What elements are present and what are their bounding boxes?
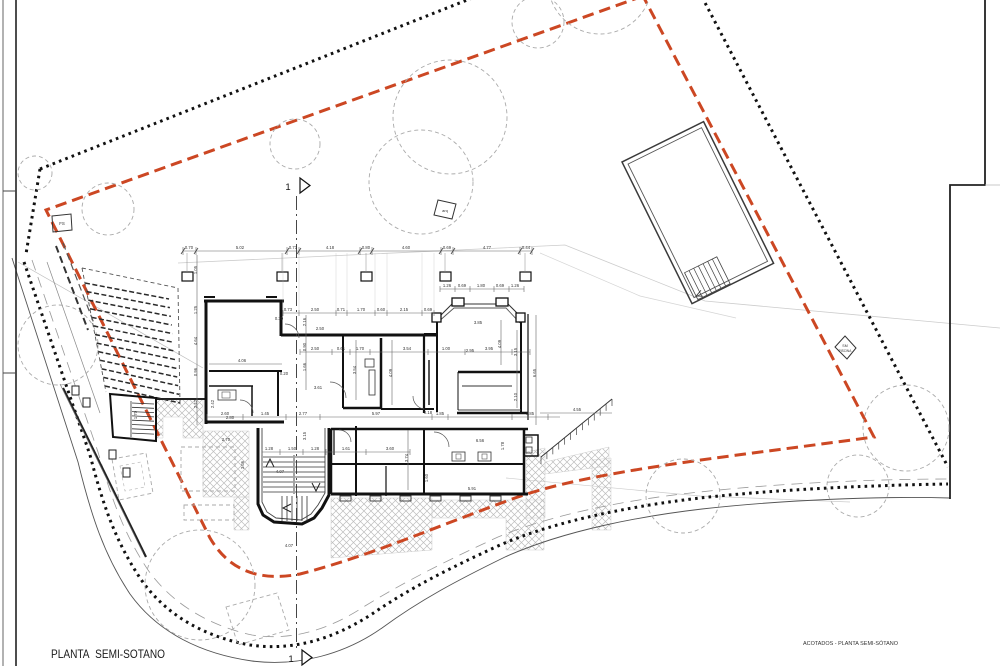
svg-text:3.74: 3.74 [404, 453, 409, 462]
svg-text:0.71: 0.71 [337, 307, 346, 312]
svg-text:5.91: 5.91 [468, 486, 477, 491]
svg-text:2.42: 2.42 [193, 399, 198, 408]
svg-text:1: 1 [288, 654, 293, 665]
svg-text:PLANTA SEMI-SOTANO: PLANTA SEMI-SOTANO [51, 648, 165, 661]
svg-text:ACOTADOS - PLANTA SEMI-SÓTANO: ACOTADOS - PLANTA SEMI-SÓTANO [803, 640, 899, 647]
svg-text:0.30: 0.30 [275, 316, 284, 321]
svg-text:1.00: 1.00 [442, 346, 451, 351]
svg-text:2.42: 2.42 [210, 399, 215, 408]
svg-text:1.28: 1.28 [311, 446, 320, 451]
svg-text:0.69: 0.69 [496, 283, 505, 288]
svg-text:1.26: 1.26 [511, 283, 520, 288]
svg-text:0.69: 0.69 [443, 245, 452, 250]
svg-text:1.50: 1.50 [288, 446, 297, 451]
svg-text:6.65: 6.65 [532, 368, 537, 377]
svg-text:4.07: 4.07 [285, 543, 294, 548]
svg-text:2.50: 2.50 [311, 307, 320, 312]
svg-text:3.54: 3.54 [403, 346, 412, 351]
svg-text:4.07: 4.07 [276, 469, 285, 474]
svg-text:1.80: 1.80 [477, 283, 486, 288]
svg-text:4.09: 4.09 [388, 368, 393, 377]
svg-text:0.44: 0.44 [522, 245, 531, 250]
svg-text:0.20: 0.20 [280, 371, 289, 376]
svg-text:2.77: 2.77 [299, 411, 308, 416]
svg-text:5.02: 5.02 [236, 245, 245, 250]
svg-text:0.69: 0.69 [424, 307, 433, 312]
svg-text:1.70: 1.70 [356, 346, 365, 351]
svg-text:0.18: 0.18 [424, 410, 433, 415]
svg-text:1: 1 [285, 182, 290, 193]
svg-text:SM: SM [842, 344, 847, 348]
svg-text:1.85: 1.85 [436, 411, 445, 416]
svg-text:1.78: 1.78 [500, 441, 505, 450]
svg-text:1.66: 1.66 [302, 362, 307, 371]
svg-text:2.50: 2.50 [311, 346, 320, 351]
svg-text:1.45: 1.45 [261, 411, 270, 416]
svg-text:0.73: 0.73 [284, 307, 293, 312]
svg-text:1.05: 1.05 [193, 265, 198, 274]
svg-text:4.60: 4.60 [402, 245, 411, 250]
svg-text:0.70: 0.70 [185, 245, 194, 250]
svg-text:3.60: 3.60 [386, 446, 395, 451]
svg-text:2.95: 2.95 [466, 348, 475, 353]
svg-text:2.70: 2.70 [222, 437, 231, 442]
svg-text:1.28: 1.28 [265, 446, 274, 451]
svg-text:5.97: 5.97 [372, 411, 381, 416]
svg-text:1.70: 1.70 [357, 307, 366, 312]
svg-text:0.96: 0.96 [193, 367, 198, 376]
svg-text:4.77: 4.77 [483, 245, 492, 250]
svg-text:1.61: 1.61 [342, 446, 351, 451]
svg-text:0.90: 0.90 [302, 342, 307, 351]
svg-text:4.06: 4.06 [238, 358, 247, 363]
svg-text:4.64: 4.64 [193, 336, 198, 345]
svg-text:1.70: 1.70 [133, 410, 138, 419]
svg-text:0.61: 0.61 [337, 346, 346, 351]
svg-text:1.60: 1.60 [424, 473, 429, 482]
svg-text:0.73: 0.73 [289, 245, 298, 250]
svg-text:3.95: 3.95 [485, 346, 494, 351]
svg-text:4.09: 4.09 [497, 339, 502, 348]
svg-text:2.80: 2.80 [226, 415, 235, 420]
svg-text:0.80: 0.80 [362, 245, 371, 250]
svg-text:3.61: 3.61 [314, 385, 323, 390]
svg-text:3.85: 3.85 [526, 411, 535, 416]
svg-text:3.85: 3.85 [474, 320, 483, 325]
svg-text:3.15: 3.15 [513, 347, 518, 356]
svg-text:2.50: 2.50 [316, 326, 325, 331]
svg-text:6.56: 6.56 [476, 438, 485, 443]
svg-text:4.55: 4.55 [573, 407, 582, 412]
svg-text:3.06: 3.06 [240, 460, 245, 469]
svg-text:PISCINA: PISCINA [839, 349, 853, 353]
svg-text:FS: FS [59, 221, 65, 226]
svg-text:3.15: 3.15 [302, 431, 307, 440]
svg-text:2.16: 2.16 [302, 317, 307, 326]
svg-text:arq: arq [442, 208, 448, 213]
svg-text:4.18: 4.18 [326, 245, 335, 250]
svg-text:1.26: 1.26 [443, 283, 452, 288]
svg-text:2.15: 2.15 [400, 307, 409, 312]
svg-text:3.54: 3.54 [352, 365, 357, 374]
svg-text:0.60: 0.60 [377, 307, 386, 312]
svg-text:2.10: 2.10 [513, 392, 518, 401]
svg-text:0.69: 0.69 [458, 283, 467, 288]
svg-text:1.25: 1.25 [193, 305, 198, 314]
